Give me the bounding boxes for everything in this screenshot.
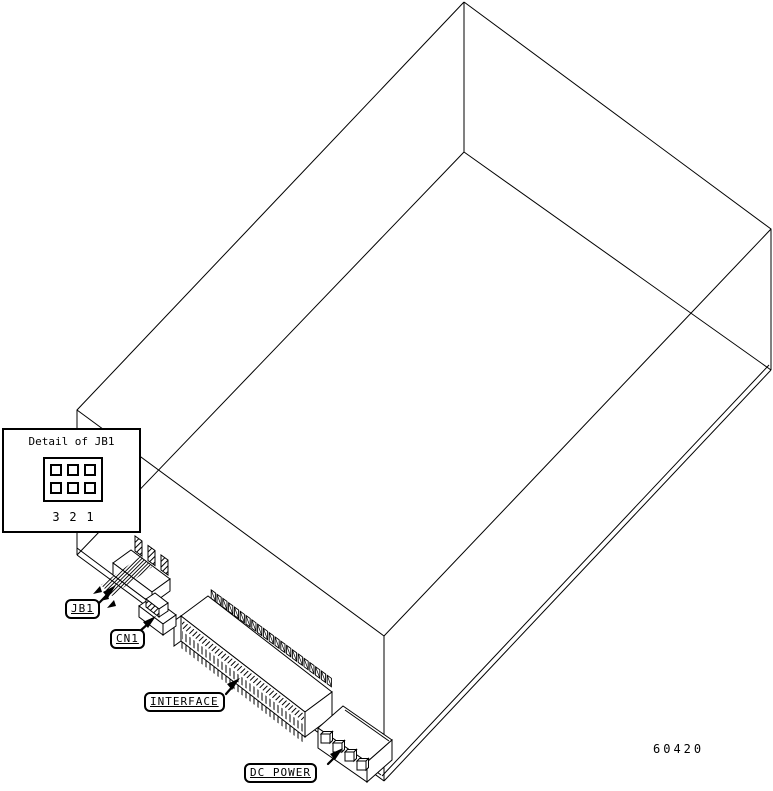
- callout-jb1: JB1: [65, 599, 100, 619]
- jumper-block-diagram: [43, 457, 103, 502]
- interface-connector-drawing: [174, 590, 332, 744]
- jumper-pin-number: 3: [50, 510, 62, 524]
- jumper-pin-number: 2: [67, 510, 79, 524]
- cn1-connector-drawing: [139, 593, 176, 635]
- chassis-wireframe: [77, 2, 771, 781]
- drive-isometric-line-drawing: [0, 0, 773, 791]
- jumper-cell: [84, 464, 96, 476]
- jumper-pin-number: 1: [84, 510, 96, 524]
- jumper-cell: [50, 464, 62, 476]
- callout-interface: INTERFACE: [144, 692, 225, 712]
- callout-dc-power: DC POWER: [244, 763, 317, 783]
- callout-cn1: CN1: [110, 629, 145, 649]
- base-lip-edges: [77, 365, 769, 776]
- figure-number: 60420: [653, 742, 704, 756]
- detail-title: Detail of JB1: [4, 436, 139, 448]
- jumper-cell: [50, 482, 62, 494]
- detail-inset-box: Detail of JB1 3 2 1: [2, 428, 141, 533]
- jumper-cell: [67, 464, 79, 476]
- technical-figure: Detail of JB1 3 2 1 JB1 CN1 INTERFACE DC…: [0, 0, 773, 791]
- jumper-cell: [84, 482, 96, 494]
- jumper-cell: [67, 482, 79, 494]
